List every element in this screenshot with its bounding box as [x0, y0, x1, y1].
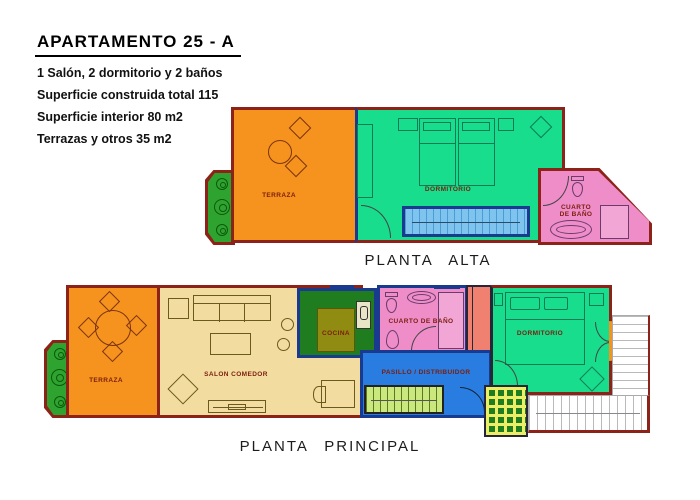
- bed: [458, 118, 495, 186]
- room-label-dormitorio-principal: DORMITORIO: [500, 330, 580, 337]
- room-cocina: [297, 288, 377, 358]
- room-label-pasillo: PASILLO / DISTRIBUIDOR: [366, 369, 486, 376]
- door-arc: [411, 326, 436, 351]
- desk-chair: [313, 386, 326, 403]
- plant-icon: [214, 199, 230, 215]
- room-terraza-principal: [66, 285, 160, 418]
- caption-planta-alta: PLANTA ALTA: [328, 252, 528, 269]
- room-dormitorio-principal: [490, 285, 612, 395]
- exterior-stairs-vertical: [612, 315, 650, 397]
- spec-interior: Superficie interior 80 m2: [37, 110, 183, 124]
- room-label-salon: SALON COMEDOR: [196, 371, 276, 378]
- wardrobe: [357, 124, 373, 198]
- spec-built: Superficie construida total 115: [37, 88, 218, 102]
- exterior-stairs-horizontal: [528, 395, 650, 433]
- bed: [505, 292, 585, 365]
- chair: [99, 291, 120, 312]
- room-label-terraza-principal: TERRAZA: [66, 377, 146, 384]
- armchair: [167, 373, 198, 404]
- coffee-table: [210, 333, 251, 355]
- door-arc: [460, 387, 485, 412]
- pouf: [281, 318, 294, 331]
- toilet: [571, 176, 584, 181]
- plant-icon: [216, 224, 228, 236]
- staircase-lower: [364, 385, 444, 414]
- bed: [419, 118, 456, 186]
- staircase-upper: [402, 206, 530, 237]
- side-table: [168, 298, 189, 319]
- patio-grid: [484, 385, 528, 437]
- nightstand: [494, 293, 503, 306]
- window-marker: [330, 285, 354, 289]
- plant-icon: [54, 396, 66, 408]
- desk: [321, 380, 355, 408]
- bidet: [386, 330, 399, 349]
- door-arc: [361, 205, 391, 238]
- nightstand: [498, 118, 514, 131]
- page-title: APARTAMENTO 25 - A: [35, 32, 241, 57]
- plant-icon: [216, 178, 228, 190]
- kitchen-sink: [356, 301, 371, 329]
- room-pasillo: [360, 350, 492, 418]
- wardrobe-block: [466, 285, 492, 353]
- toilet-bowl: [386, 298, 397, 313]
- floor-plan-sheet: APARTAMENTO 25 - A 1 Salón, 2 dormitorio…: [0, 0, 700, 500]
- room-label-terraza-alta: TERRAZA: [239, 192, 319, 199]
- spec-rooms: 1 Salón, 2 dormitorio y 2 baños: [37, 66, 222, 80]
- balcony-door-arc: [595, 342, 610, 362]
- bath-sink: [407, 291, 436, 304]
- chair: [579, 366, 604, 391]
- caption-planta-principal: PLANTA PRINCIPAL: [230, 438, 430, 455]
- toilet: [385, 292, 398, 297]
- room-label-bano-principal: CUARTO DE BAÑO: [380, 318, 462, 325]
- nightstand: [398, 118, 418, 131]
- chair: [289, 117, 312, 140]
- room-label-dormitorio-alta: DORMITORIO: [408, 186, 488, 193]
- room-label-cocina: COCINA: [306, 330, 366, 337]
- bano-line1: CUARTO: [561, 204, 591, 211]
- room-terraza-alta: [231, 107, 358, 243]
- tv-cabinet: [208, 400, 266, 413]
- window-marker: [434, 285, 460, 289]
- bathtub: [550, 220, 592, 239]
- nightstand: [589, 293, 604, 306]
- room-label-bano-alta: CUARTO DE BAÑO: [546, 204, 606, 219]
- bano-line2: DE BAÑO: [560, 211, 593, 218]
- sofa: [193, 295, 271, 321]
- plant-icon: [54, 348, 66, 360]
- chair: [530, 116, 553, 139]
- spec-terraces: Terrazas y otros 35 m2: [37, 132, 172, 146]
- pouf: [277, 338, 290, 351]
